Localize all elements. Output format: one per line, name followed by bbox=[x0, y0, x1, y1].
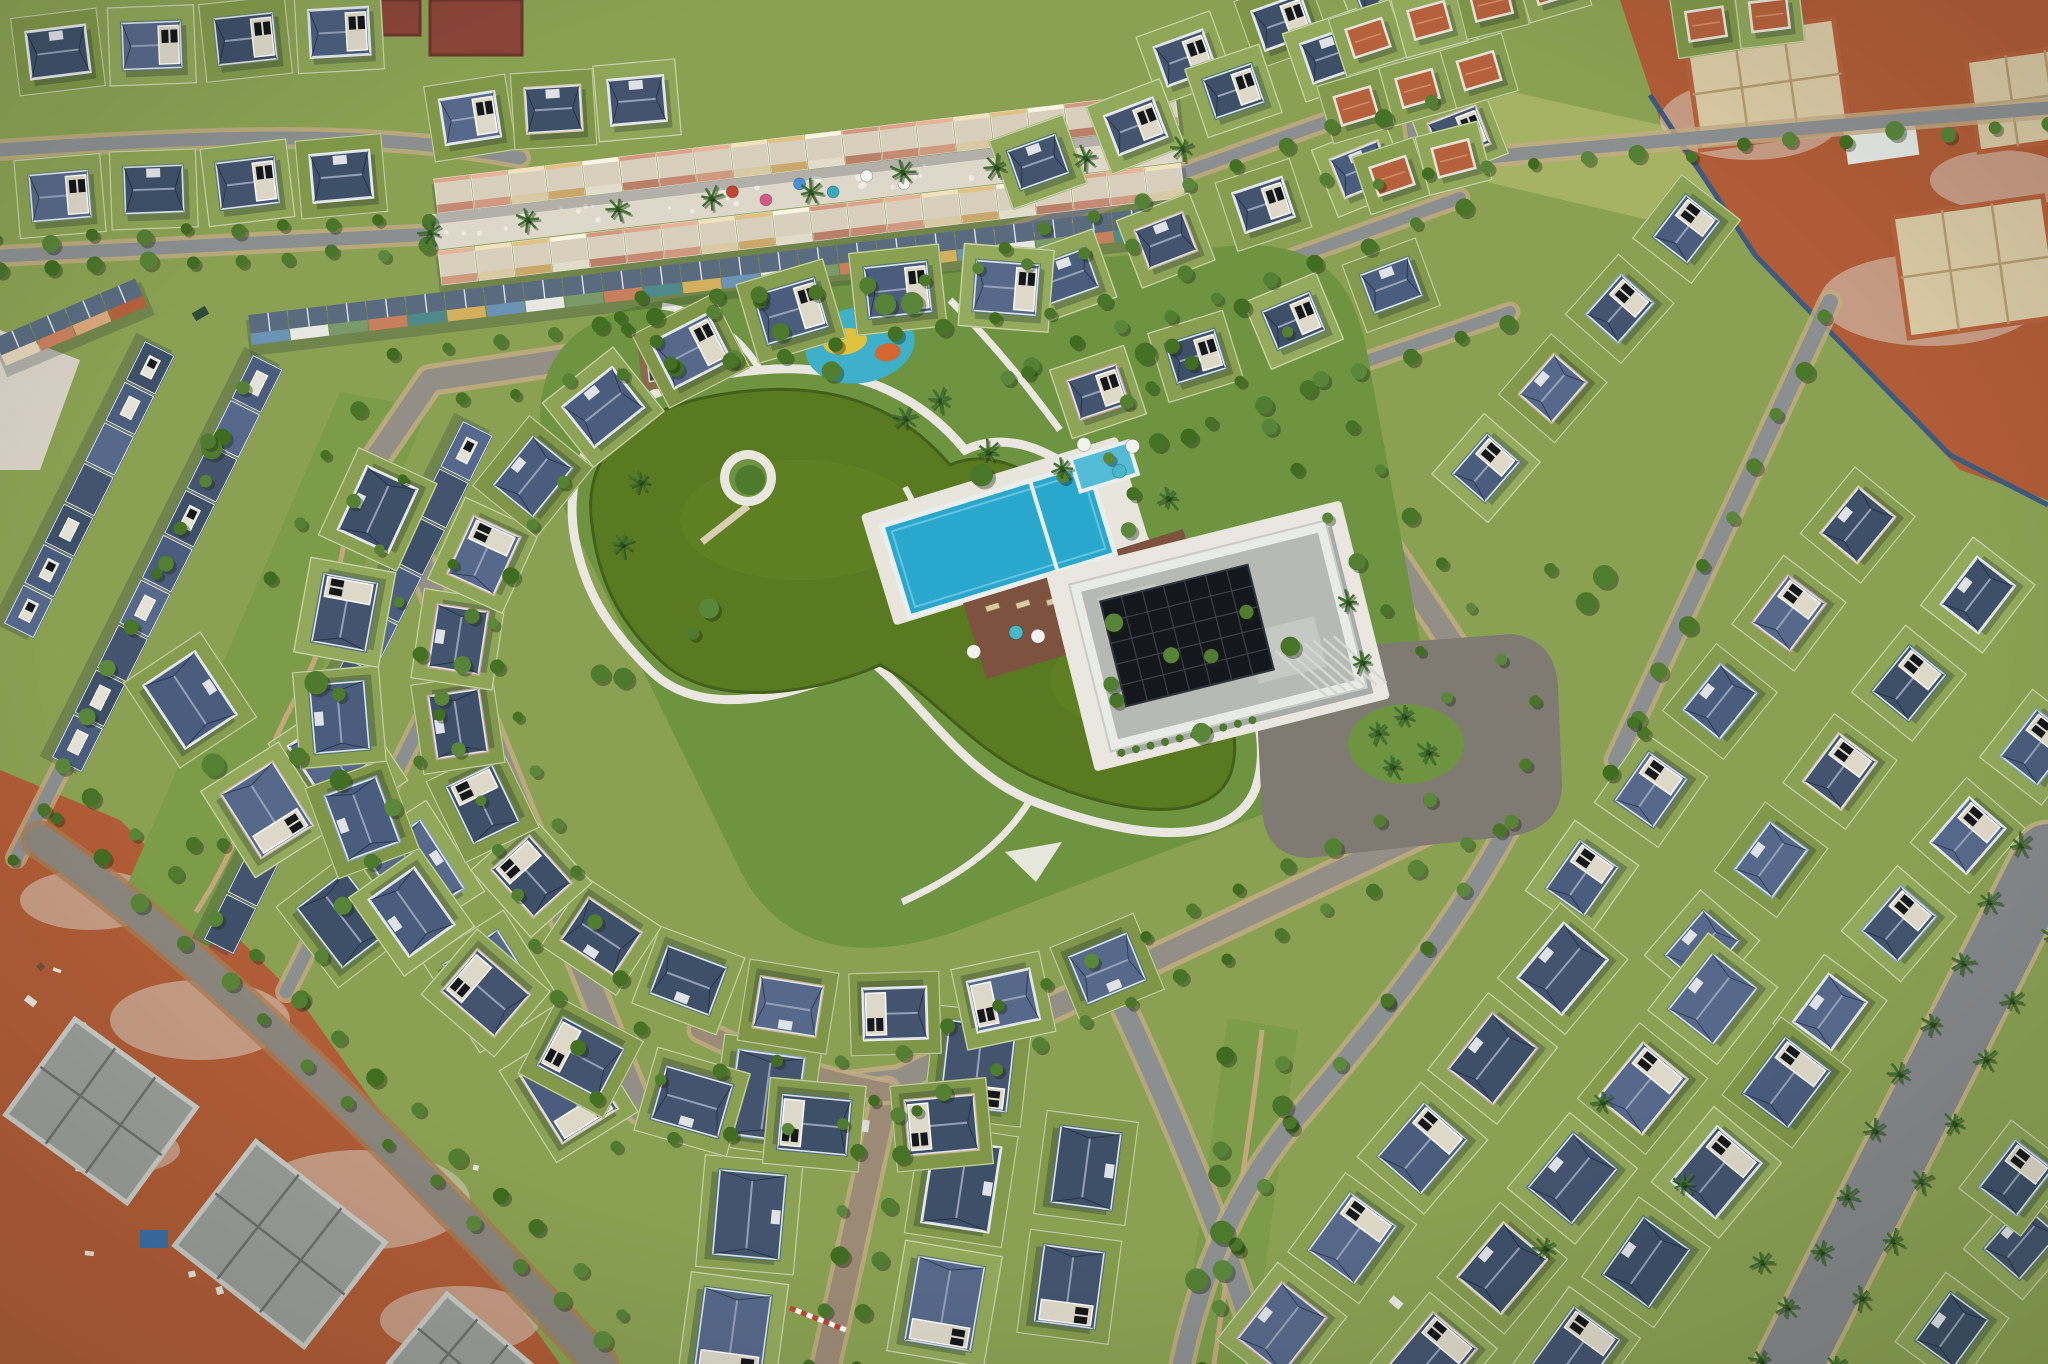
vignette-overlay bbox=[0, 0, 2048, 1364]
aerial-photo-frame bbox=[0, 0, 2048, 1364]
aerial-photo-residential-estate bbox=[0, 0, 2048, 1364]
